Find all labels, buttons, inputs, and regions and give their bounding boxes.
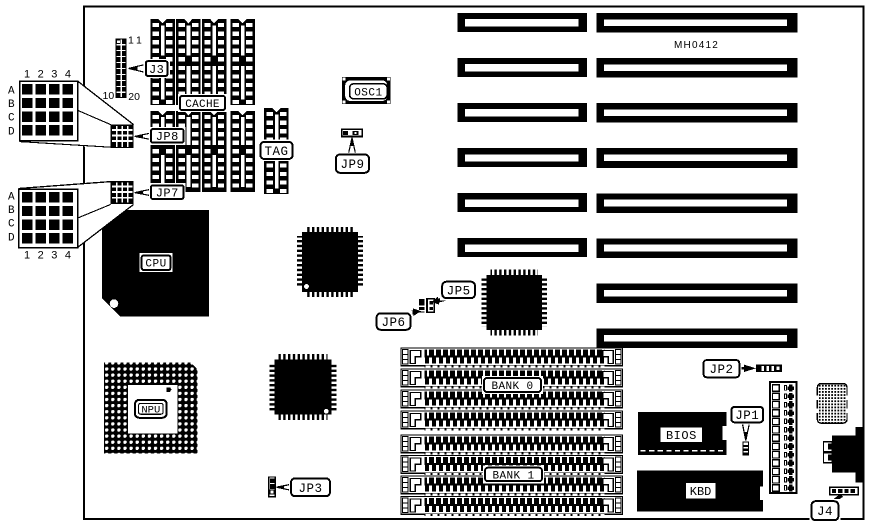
svg-text:BIOS: BIOS <box>666 429 697 443</box>
svg-text:C: C <box>8 219 15 231</box>
svg-text:CPU: CPU <box>145 259 166 271</box>
svg-text:JP9: JP9 <box>340 158 364 172</box>
svg-text:B: B <box>8 205 15 217</box>
svg-text:JP6: JP6 <box>382 316 406 330</box>
svg-text:TAG: TAG <box>265 145 289 159</box>
svg-text:D: D <box>8 232 15 244</box>
svg-text:OSC1: OSC1 <box>354 87 382 99</box>
svg-text:A: A <box>8 86 15 98</box>
svg-text:A: A <box>8 192 15 204</box>
svg-text:B: B <box>8 99 15 111</box>
svg-text:JP3: JP3 <box>298 482 322 496</box>
svg-text:CACHE: CACHE <box>185 99 220 111</box>
svg-text:1234: 1234 <box>24 69 78 81</box>
svg-text:KBD: KBD <box>690 485 712 499</box>
svg-text:10: 10 <box>103 90 115 102</box>
svg-text:BANK 0: BANK 0 <box>491 381 533 393</box>
svg-text:11: 11 <box>128 35 145 47</box>
svg-text:JP1: JP1 <box>735 409 759 423</box>
svg-text:NPU: NPU <box>141 404 160 416</box>
svg-text:C: C <box>8 113 15 125</box>
svg-text:1234: 1234 <box>24 250 78 262</box>
svg-text:JP2: JP2 <box>709 363 733 377</box>
svg-text:BANK 1: BANK 1 <box>492 470 534 482</box>
svg-text:JP8: JP8 <box>156 130 179 144</box>
svg-text:J4: J4 <box>817 505 833 519</box>
svg-text:J3: J3 <box>149 63 164 77</box>
svg-text:MH0412: MH0412 <box>674 40 719 51</box>
svg-text:D: D <box>8 126 15 138</box>
svg-text:20: 20 <box>128 91 140 103</box>
svg-text:JP7: JP7 <box>156 187 179 201</box>
svg-text:JP5: JP5 <box>447 284 471 298</box>
